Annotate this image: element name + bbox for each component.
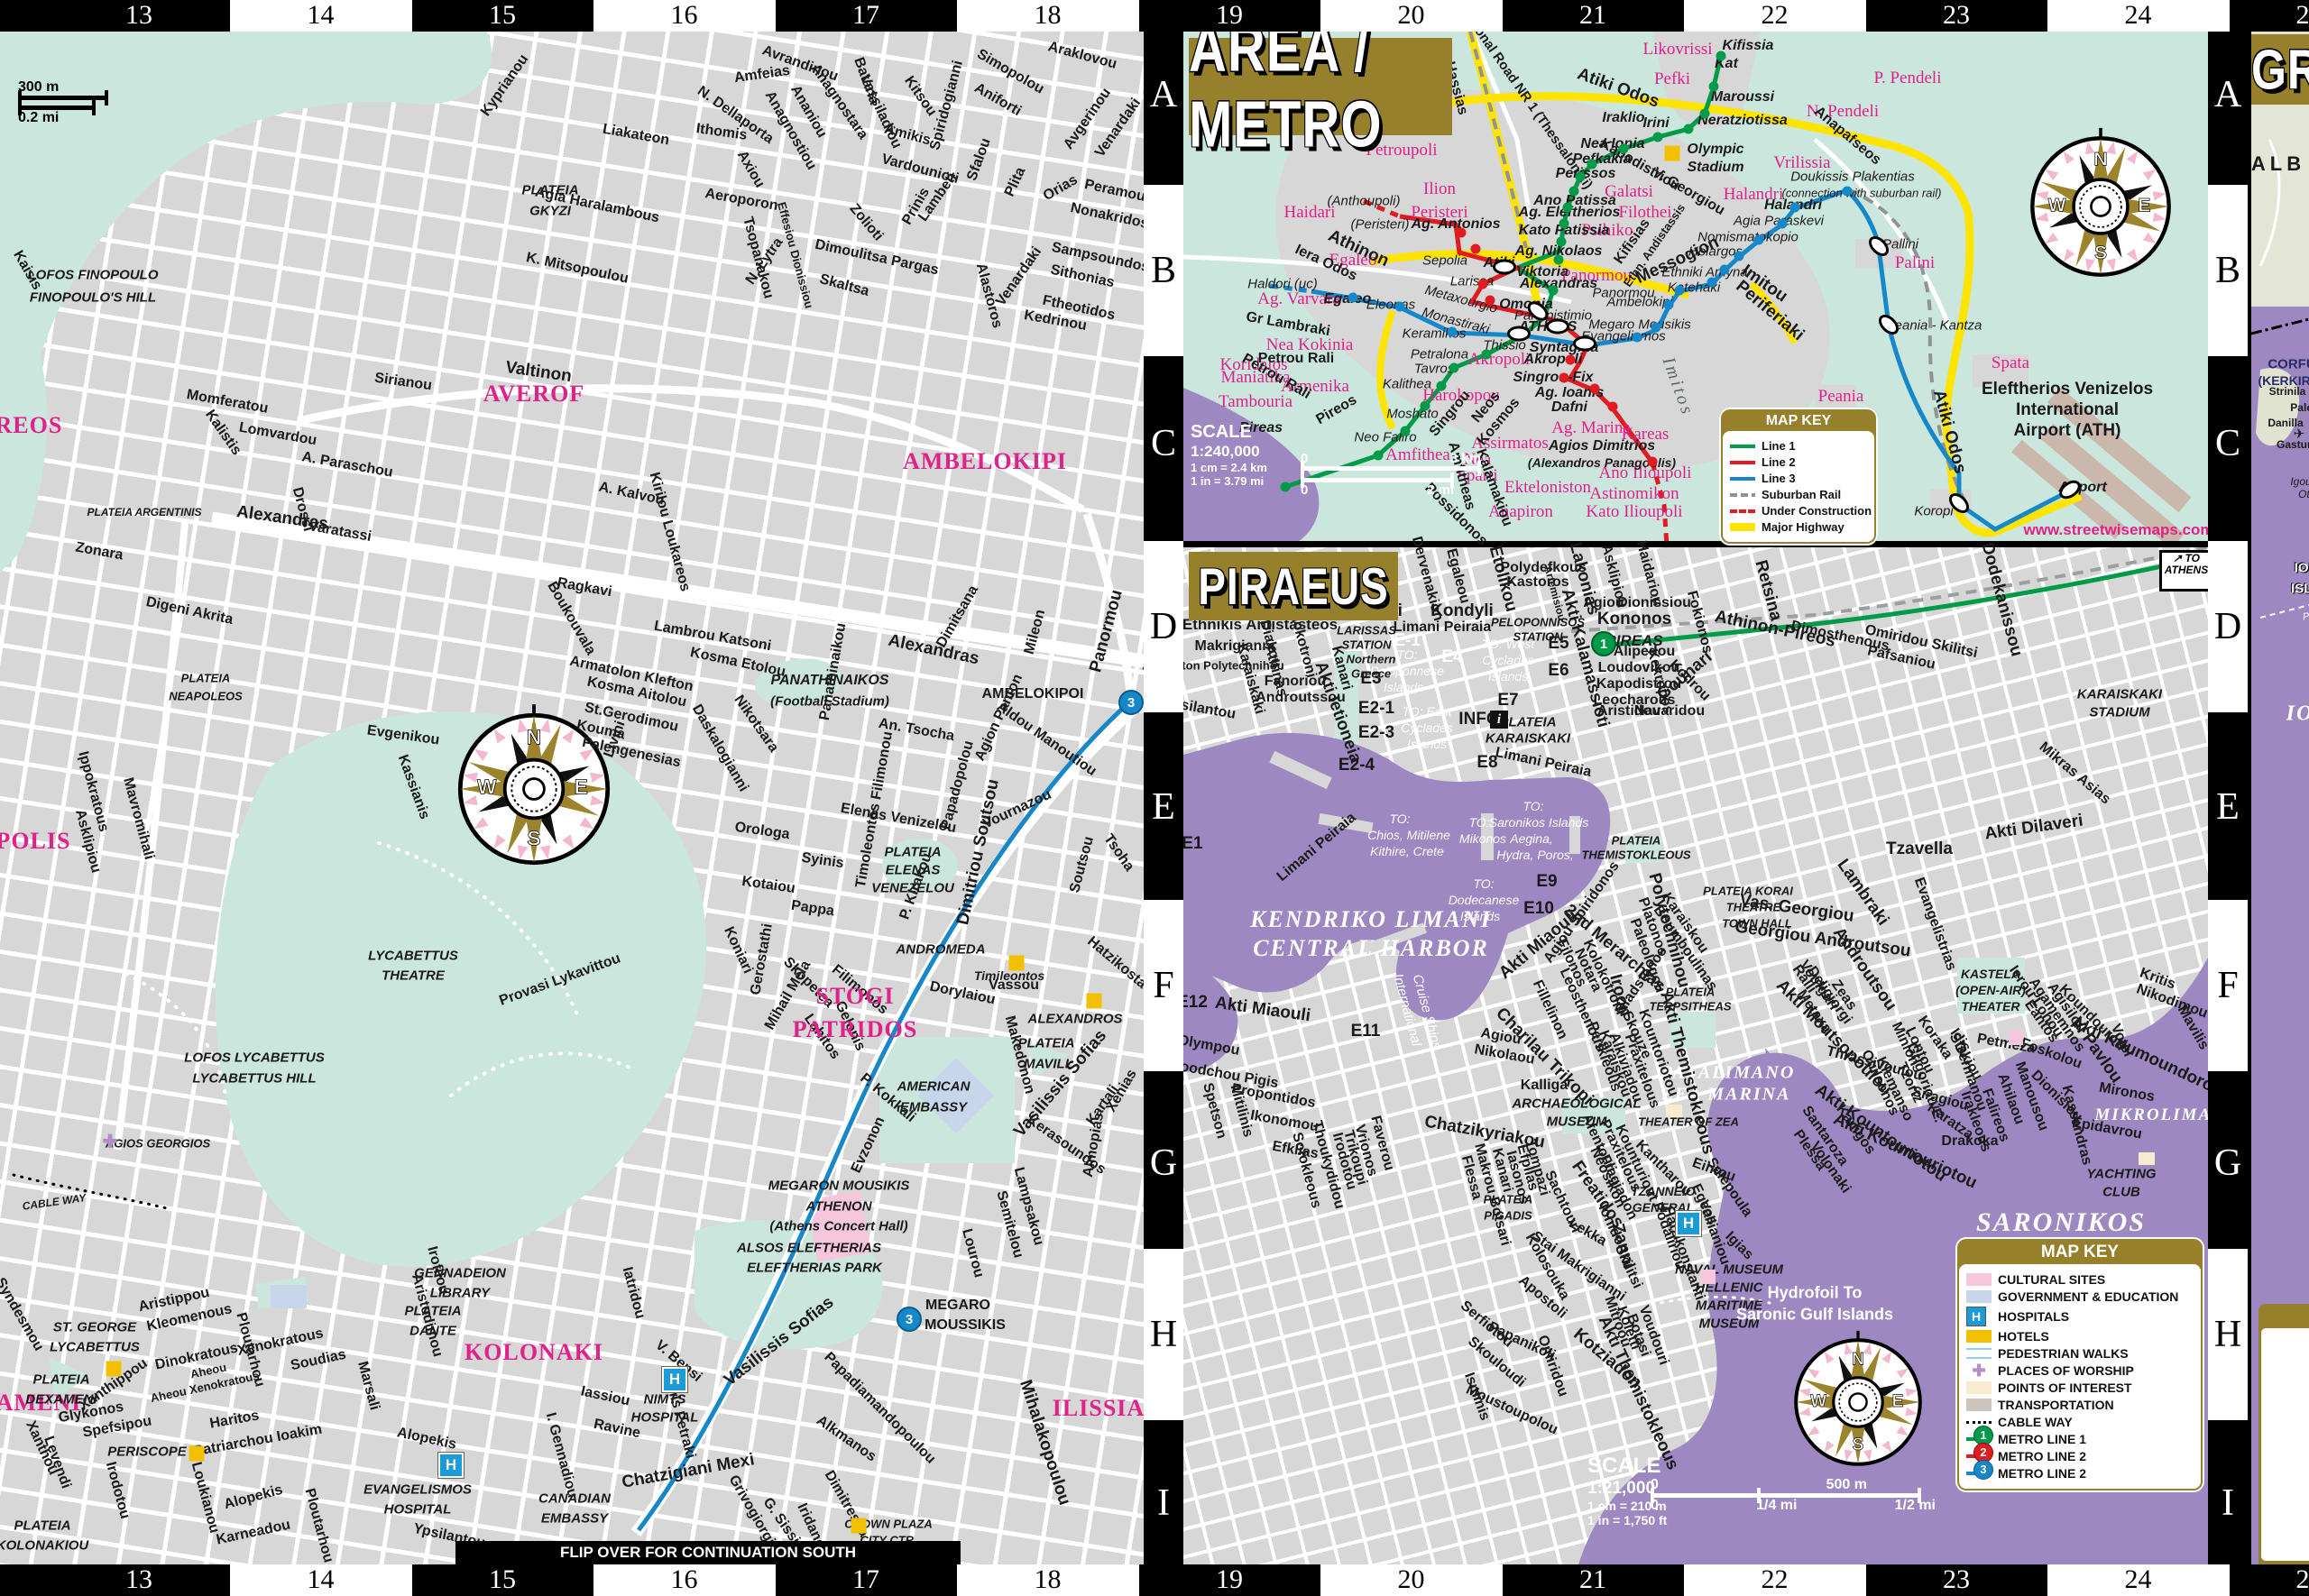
grid-number: 13 bbox=[125, 0, 152, 31]
map-key-title: MAP KEY bbox=[1959, 1241, 2201, 1264]
legend-label: Line 3 bbox=[1762, 472, 1796, 485]
scale-metric: 1 cm = 2.4 km bbox=[1191, 461, 1267, 474]
grid-number: 15 bbox=[489, 1564, 516, 1595]
legend-swatch bbox=[1966, 1290, 1992, 1303]
legend-swatch: ✚ bbox=[1966, 1364, 1992, 1377]
legend-swatch bbox=[1730, 521, 1755, 534]
legend-row: GOVERNMENT & EDUCATION bbox=[1966, 1289, 2194, 1304]
grid-number: 14 bbox=[308, 1564, 335, 1595]
legend-label: CULTURAL SITES bbox=[1998, 1272, 2105, 1287]
legend-label: METRO LINE 2 bbox=[1998, 1449, 2086, 1463]
central-harbor-water bbox=[1183, 733, 1610, 1021]
grid-number: 20 bbox=[1398, 1564, 1425, 1595]
grid-letter-strip-left: ABCDEFGHI bbox=[1144, 32, 1183, 1564]
legend-row: Major Highway bbox=[1730, 520, 1867, 534]
grid-letter: G bbox=[1150, 1142, 1177, 1185]
legend-row: ✚PLACES OF WORSHIP bbox=[1966, 1363, 2194, 1378]
grid-number: 16 bbox=[671, 0, 698, 31]
legend-swatch bbox=[1966, 1399, 1992, 1411]
legend-row: METRO LINE 1 bbox=[1966, 1432, 2194, 1446]
grid-letter: G bbox=[2214, 1142, 2241, 1185]
legend-row: CULTURAL SITES bbox=[1966, 1272, 2194, 1287]
grid-number: 24 bbox=[2125, 0, 2152, 31]
svg-text:S: S bbox=[2094, 243, 2107, 263]
legend-row: HHOSPITALS bbox=[1966, 1307, 2194, 1326]
legend-swatch bbox=[1966, 1347, 1992, 1360]
grid-number: 19 bbox=[1216, 0, 1243, 31]
area-metro-scale: SCALE 1:240,000 1 cm = 2.4 km 1 in = 3.7… bbox=[1191, 422, 1267, 488]
piraeus-map-key: MAP KEY CULTURAL SITESGOVERNMENT & EDUCA… bbox=[1955, 1237, 2204, 1492]
grid-number: 16 bbox=[671, 1564, 698, 1595]
grid-number: 22 bbox=[1762, 1564, 1789, 1595]
legend-swatch bbox=[1730, 472, 1755, 485]
grid-number: 15 bbox=[489, 0, 516, 31]
flip-over-banner: FLIP OVER FOR CONTINUATION SOUTH bbox=[455, 1541, 961, 1564]
leftmap-scale: 300 m 0.2 mi bbox=[18, 79, 108, 126]
legend-label: POINTS OF INTEREST bbox=[1998, 1380, 2132, 1395]
area-metro-map-key: MAP KEY Line 1Line 2Line 3Suburban RailU… bbox=[1719, 408, 1878, 546]
streetwise-athens-map-page: AREA / METRO PIRAEUS GRE MAP KEY Line 1L… bbox=[0, 0, 2309, 1596]
piraeus-scale-bars: 0500 m 01/4 mi1/2 mi bbox=[1651, 1477, 1939, 1514]
svg-text:E: E bbox=[575, 775, 588, 799]
grid-number: 17 bbox=[852, 0, 879, 31]
legend-label: Under Construction bbox=[1762, 504, 1872, 518]
grid-number: 18 bbox=[1035, 1564, 1062, 1595]
grid-letter: E bbox=[1152, 785, 1175, 829]
grid-number: 14 bbox=[308, 0, 335, 31]
grid-letter: H bbox=[2214, 1313, 2241, 1356]
grid-letter: H bbox=[1150, 1313, 1177, 1356]
grid-number: 13 bbox=[125, 1564, 152, 1595]
grid-letter: D bbox=[2214, 605, 2241, 648]
grid-number: 17 bbox=[852, 1564, 879, 1595]
scale-imperial: 1 in = 3.79 mi bbox=[1191, 474, 1267, 488]
legend-swatch bbox=[1730, 505, 1755, 518]
grid-letter: D bbox=[1150, 605, 1177, 648]
legend-swatch bbox=[1730, 456, 1755, 469]
legend-row: HOTELS bbox=[1966, 1329, 2194, 1344]
grid-number: 19 bbox=[1216, 1564, 1243, 1595]
grid-number: 21 bbox=[1579, 1564, 1606, 1595]
cable-way-line bbox=[14, 1175, 167, 1208]
compass-rose: NESW bbox=[2021, 127, 2180, 286]
grid-letter: E bbox=[2216, 785, 2240, 829]
legend-label: METRO LINE 2 bbox=[1998, 1466, 2086, 1481]
area-scale-bars: 03 km 02 mi bbox=[1301, 451, 1481, 498]
grid-number: 18 bbox=[1035, 0, 1062, 31]
svg-text:S: S bbox=[1853, 1435, 1864, 1454]
svg-text:N: N bbox=[527, 726, 541, 749]
legend-swatch bbox=[1966, 1467, 1992, 1480]
grid-letter: I bbox=[2222, 1481, 2234, 1525]
legend-row: Line 3 bbox=[1730, 472, 1867, 485]
map-key-title: MAP KEY bbox=[1723, 411, 1874, 431]
grid-letter-strip-right: ABCDEFGHI bbox=[2208, 32, 2248, 1564]
legend-label: GOVERNMENT & EDUCATION bbox=[1998, 1289, 2178, 1304]
legend-swatch bbox=[1730, 440, 1755, 453]
legend-swatch bbox=[1730, 489, 1755, 501]
grid-number: 20 bbox=[1398, 0, 1425, 31]
grid-number: 23 bbox=[1943, 0, 1970, 31]
grid-letter: A bbox=[1150, 73, 1177, 116]
metro-line1-route bbox=[1604, 556, 2208, 646]
grid-letter: F bbox=[2217, 964, 2238, 1007]
grid-letter: I bbox=[1157, 1481, 1170, 1525]
grid-bar-bottom: 1314151617181920212223242 bbox=[0, 1564, 2309, 1596]
to-athens-box: ↗ TOATHENS bbox=[2159, 550, 2213, 592]
legend-label: Line 1 bbox=[1762, 439, 1796, 453]
legend-label: HOTELS bbox=[1998, 1329, 2049, 1344]
piraeus-title: PIRAEUS bbox=[1189, 552, 1398, 620]
scale-ratio: 1:240,000 bbox=[1191, 443, 1267, 461]
legend-row: TRANSPORTATION bbox=[1966, 1398, 2194, 1412]
legend-label: Line 2 bbox=[1762, 455, 1796, 469]
legend-label: METRO LINE 1 bbox=[1998, 1432, 2086, 1446]
grid-bar-top: 1314151617181920212223242 bbox=[0, 0, 2309, 32]
legend-swatch bbox=[1966, 1381, 1992, 1394]
legend-label: PEDESTRIAN WALKS bbox=[1998, 1346, 2129, 1361]
grid-number-partial: 2 bbox=[2296, 1564, 2309, 1595]
legend-row: POINTS OF INTEREST bbox=[1966, 1380, 2194, 1395]
svg-text:W: W bbox=[2048, 195, 2066, 216]
panel-divider bbox=[1183, 541, 2208, 547]
legend-row: METRO LINE 2 bbox=[1966, 1449, 2194, 1463]
svg-text:E: E bbox=[1892, 1392, 1904, 1411]
legend-row: PEDESTRIAN WALKS bbox=[1966, 1346, 2194, 1361]
legend-row: Line 1 bbox=[1730, 439, 1867, 453]
legend-swatch: H bbox=[1966, 1307, 1986, 1326]
legend-swatch bbox=[1966, 1330, 1992, 1343]
scale-title: SCALE bbox=[1191, 422, 1267, 443]
grid-number: 22 bbox=[1762, 0, 1789, 31]
grid-letter: C bbox=[1151, 422, 1176, 465]
scale-metric: 300 m bbox=[18, 79, 108, 96]
compass-rose: NESW bbox=[448, 703, 620, 875]
scale-title: SCALE bbox=[1587, 1454, 1667, 1479]
greece-title-partial: GRE bbox=[2251, 34, 2309, 105]
scale-imperial: 1 in = 1,750 ft bbox=[1587, 1513, 1667, 1527]
svg-text:S: S bbox=[527, 827, 540, 850]
svg-text:W: W bbox=[1810, 1392, 1827, 1411]
legend-row: Line 2 bbox=[1730, 455, 1867, 469]
grid-letter: F bbox=[1153, 964, 1173, 1007]
legend-label: HOSPITALS bbox=[1998, 1309, 2069, 1324]
adjacent-page-key-partial bbox=[2258, 1304, 2309, 1570]
svg-text:W: W bbox=[477, 775, 497, 799]
legend-row: Suburban Rail bbox=[1730, 488, 1867, 501]
grid-number-partial: 2 bbox=[2296, 0, 2309, 31]
area-metro-title: AREA / METRO bbox=[1189, 38, 1452, 135]
legend-swatch bbox=[1966, 1273, 1992, 1286]
grid-number: 23 bbox=[1943, 1564, 1970, 1595]
legend-label: TRANSPORTATION bbox=[1998, 1398, 2114, 1412]
grid-letter: B bbox=[2215, 249, 2240, 292]
grid-letter: B bbox=[1151, 249, 1176, 292]
legend-label: Suburban Rail bbox=[1762, 488, 1841, 501]
legend-label: PLACES OF WORSHIP bbox=[1998, 1363, 2134, 1378]
svg-text:E: E bbox=[2138, 195, 2150, 216]
svg-text:N: N bbox=[1852, 1350, 1864, 1369]
grid-letter: C bbox=[2215, 422, 2240, 465]
grid-number: 24 bbox=[2125, 1564, 2152, 1595]
grid-letter: A bbox=[2214, 73, 2241, 116]
legend-row: METRO LINE 2 bbox=[1966, 1466, 2194, 1481]
legend-label: Major Highway bbox=[1762, 520, 1844, 534]
legend-row: CABLE WAY bbox=[1966, 1415, 2194, 1429]
legend-row: Under Construction bbox=[1730, 504, 1867, 518]
grid-number: 21 bbox=[1579, 0, 1606, 31]
legend-label: CABLE WAY bbox=[1998, 1415, 2073, 1429]
compass-rose: NESW bbox=[1786, 1330, 1930, 1474]
svg-text:N: N bbox=[2093, 149, 2107, 170]
